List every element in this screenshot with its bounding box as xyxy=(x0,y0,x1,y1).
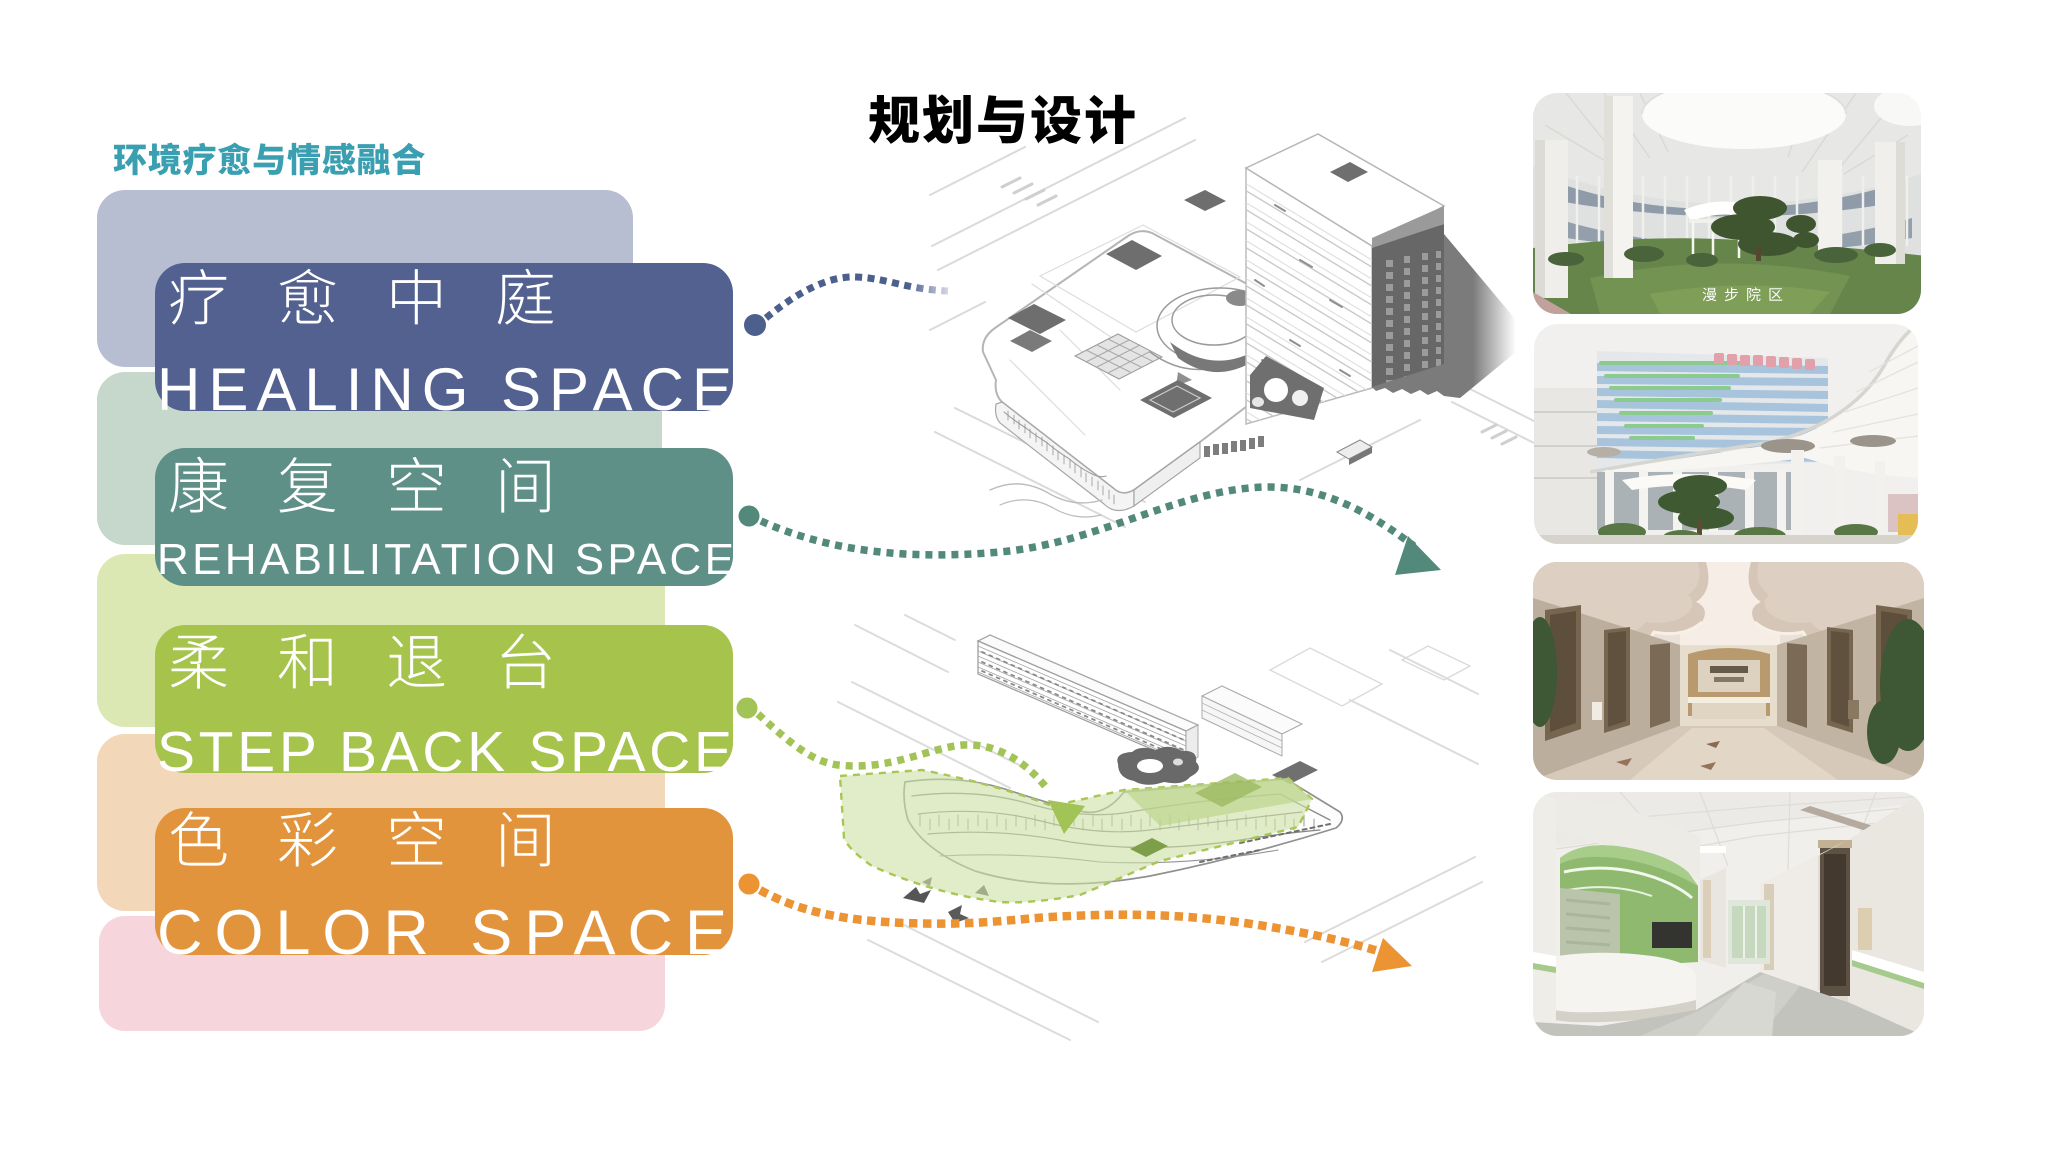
svg-text:REHABILITATION SPACE: REHABILITATION SPACE xyxy=(157,535,734,584)
svg-text:COLOR SPACE: COLOR SPACE xyxy=(157,898,727,968)
svg-text:HEALING SPACE: HEALING SPACE xyxy=(157,356,732,423)
